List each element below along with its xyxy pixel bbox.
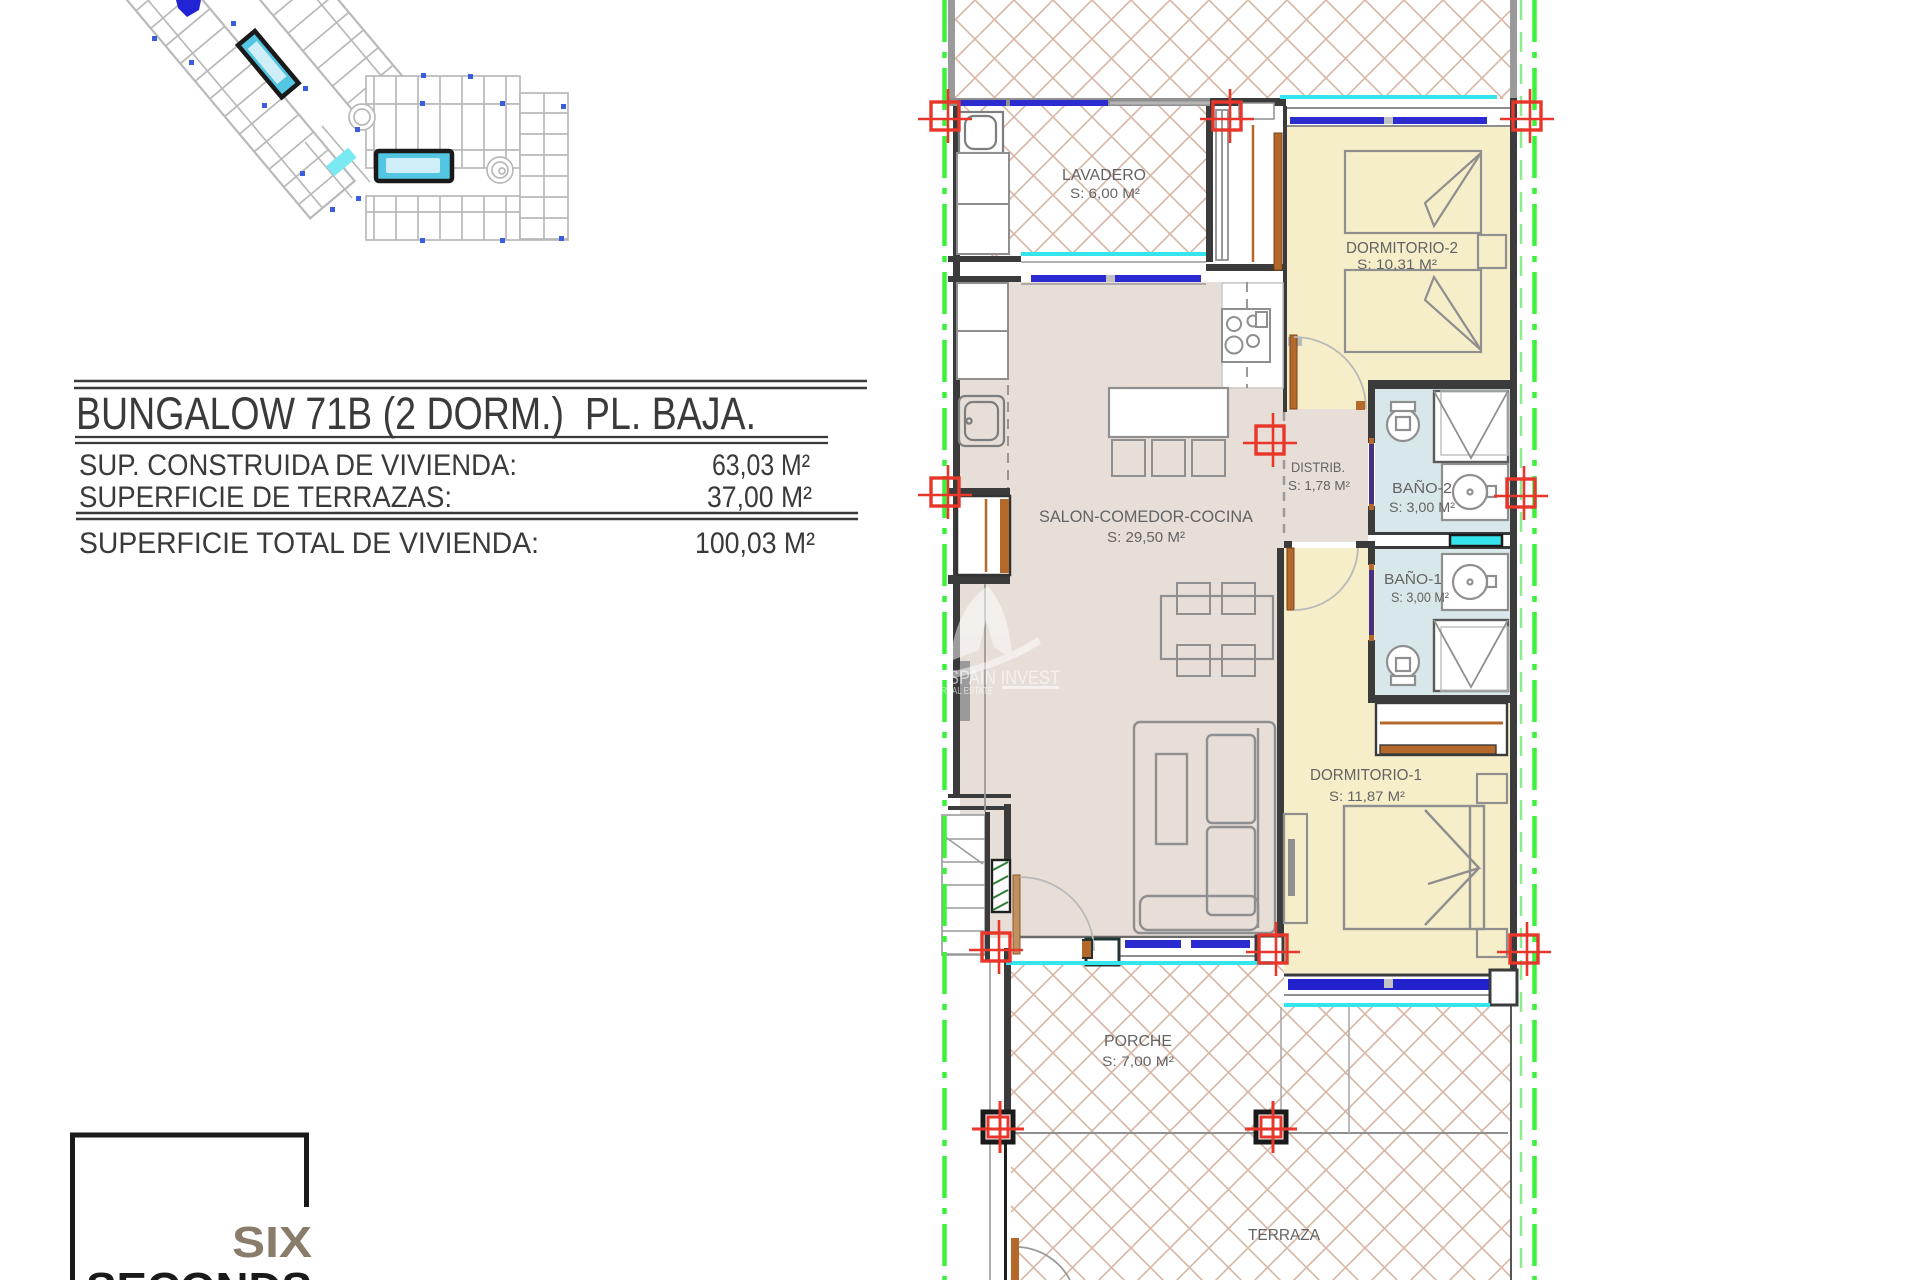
svg-text:SALON-COMEDOR-COCINA: SALON-COMEDOR-COCINA — [1039, 507, 1254, 526]
svg-text:S: 1,78 M²: S: 1,78 M² — [1288, 478, 1351, 493]
svg-text:BAÑO-2: BAÑO-2 — [1392, 480, 1452, 497]
svg-text:S: 29,50 M²: S: 29,50 M² — [1107, 529, 1185, 546]
svg-text:DORMITORIO-2: DORMITORIO-2 — [1346, 240, 1458, 257]
svg-text:63,03 M²: 63,03 M² — [712, 449, 810, 482]
svg-text:TERRAZA: TERRAZA — [1248, 1227, 1320, 1244]
svg-text:S: 3,00 M²: S: 3,00 M² — [1389, 499, 1455, 515]
svg-text:S: 10,31 M²: S: 10,31 M² — [1357, 256, 1437, 272]
svg-text:REAL ESTATE: REAL ESTATE — [941, 686, 993, 697]
svg-text:S: 7,00 M²: S: 7,00 M² — [1102, 1053, 1174, 1069]
svg-text:SUP. CONSTRUIDA DE VIVIENDA:: SUP. CONSTRUIDA DE VIVIENDA: — [79, 449, 517, 482]
svg-text:BAÑO-1: BAÑO-1 — [1384, 571, 1442, 588]
svg-text:SIX: SIX — [232, 1218, 312, 1267]
svg-text:SUPERFICIE DE TERRAZAS:: SUPERFICIE DE TERRAZAS: — [79, 481, 452, 514]
svg-text:37,00 M²: 37,00 M² — [707, 481, 812, 514]
svg-text:DISTRIB.: DISTRIB. — [1291, 459, 1345, 475]
svg-text:LAVADERO: LAVADERO — [1062, 167, 1146, 184]
svg-text:PORCHE: PORCHE — [1104, 1033, 1172, 1050]
svg-text:SUPERFICIE TOTAL DE VIVIENDA:: SUPERFICIE TOTAL DE VIVIENDA: — [79, 527, 539, 560]
svg-text:S: 6,00 M²: S: 6,00 M² — [1070, 185, 1140, 201]
svg-text:BUNGALOW 71B (2 DORM.) PL. BA: BUNGALOW 71B (2 DORM.) PL. BAJA. — [76, 388, 756, 439]
svg-text:S: 3,00 M²: S: 3,00 M² — [1391, 589, 1449, 605]
svg-text:S: 11,87 M²: S: 11,87 M² — [1329, 788, 1405, 804]
svg-text:SECONDS: SECONDS — [86, 1264, 312, 1280]
svg-text:100,03 M²: 100,03 M² — [695, 527, 815, 560]
svg-text:DORMITORIO-1: DORMITORIO-1 — [1310, 767, 1422, 784]
